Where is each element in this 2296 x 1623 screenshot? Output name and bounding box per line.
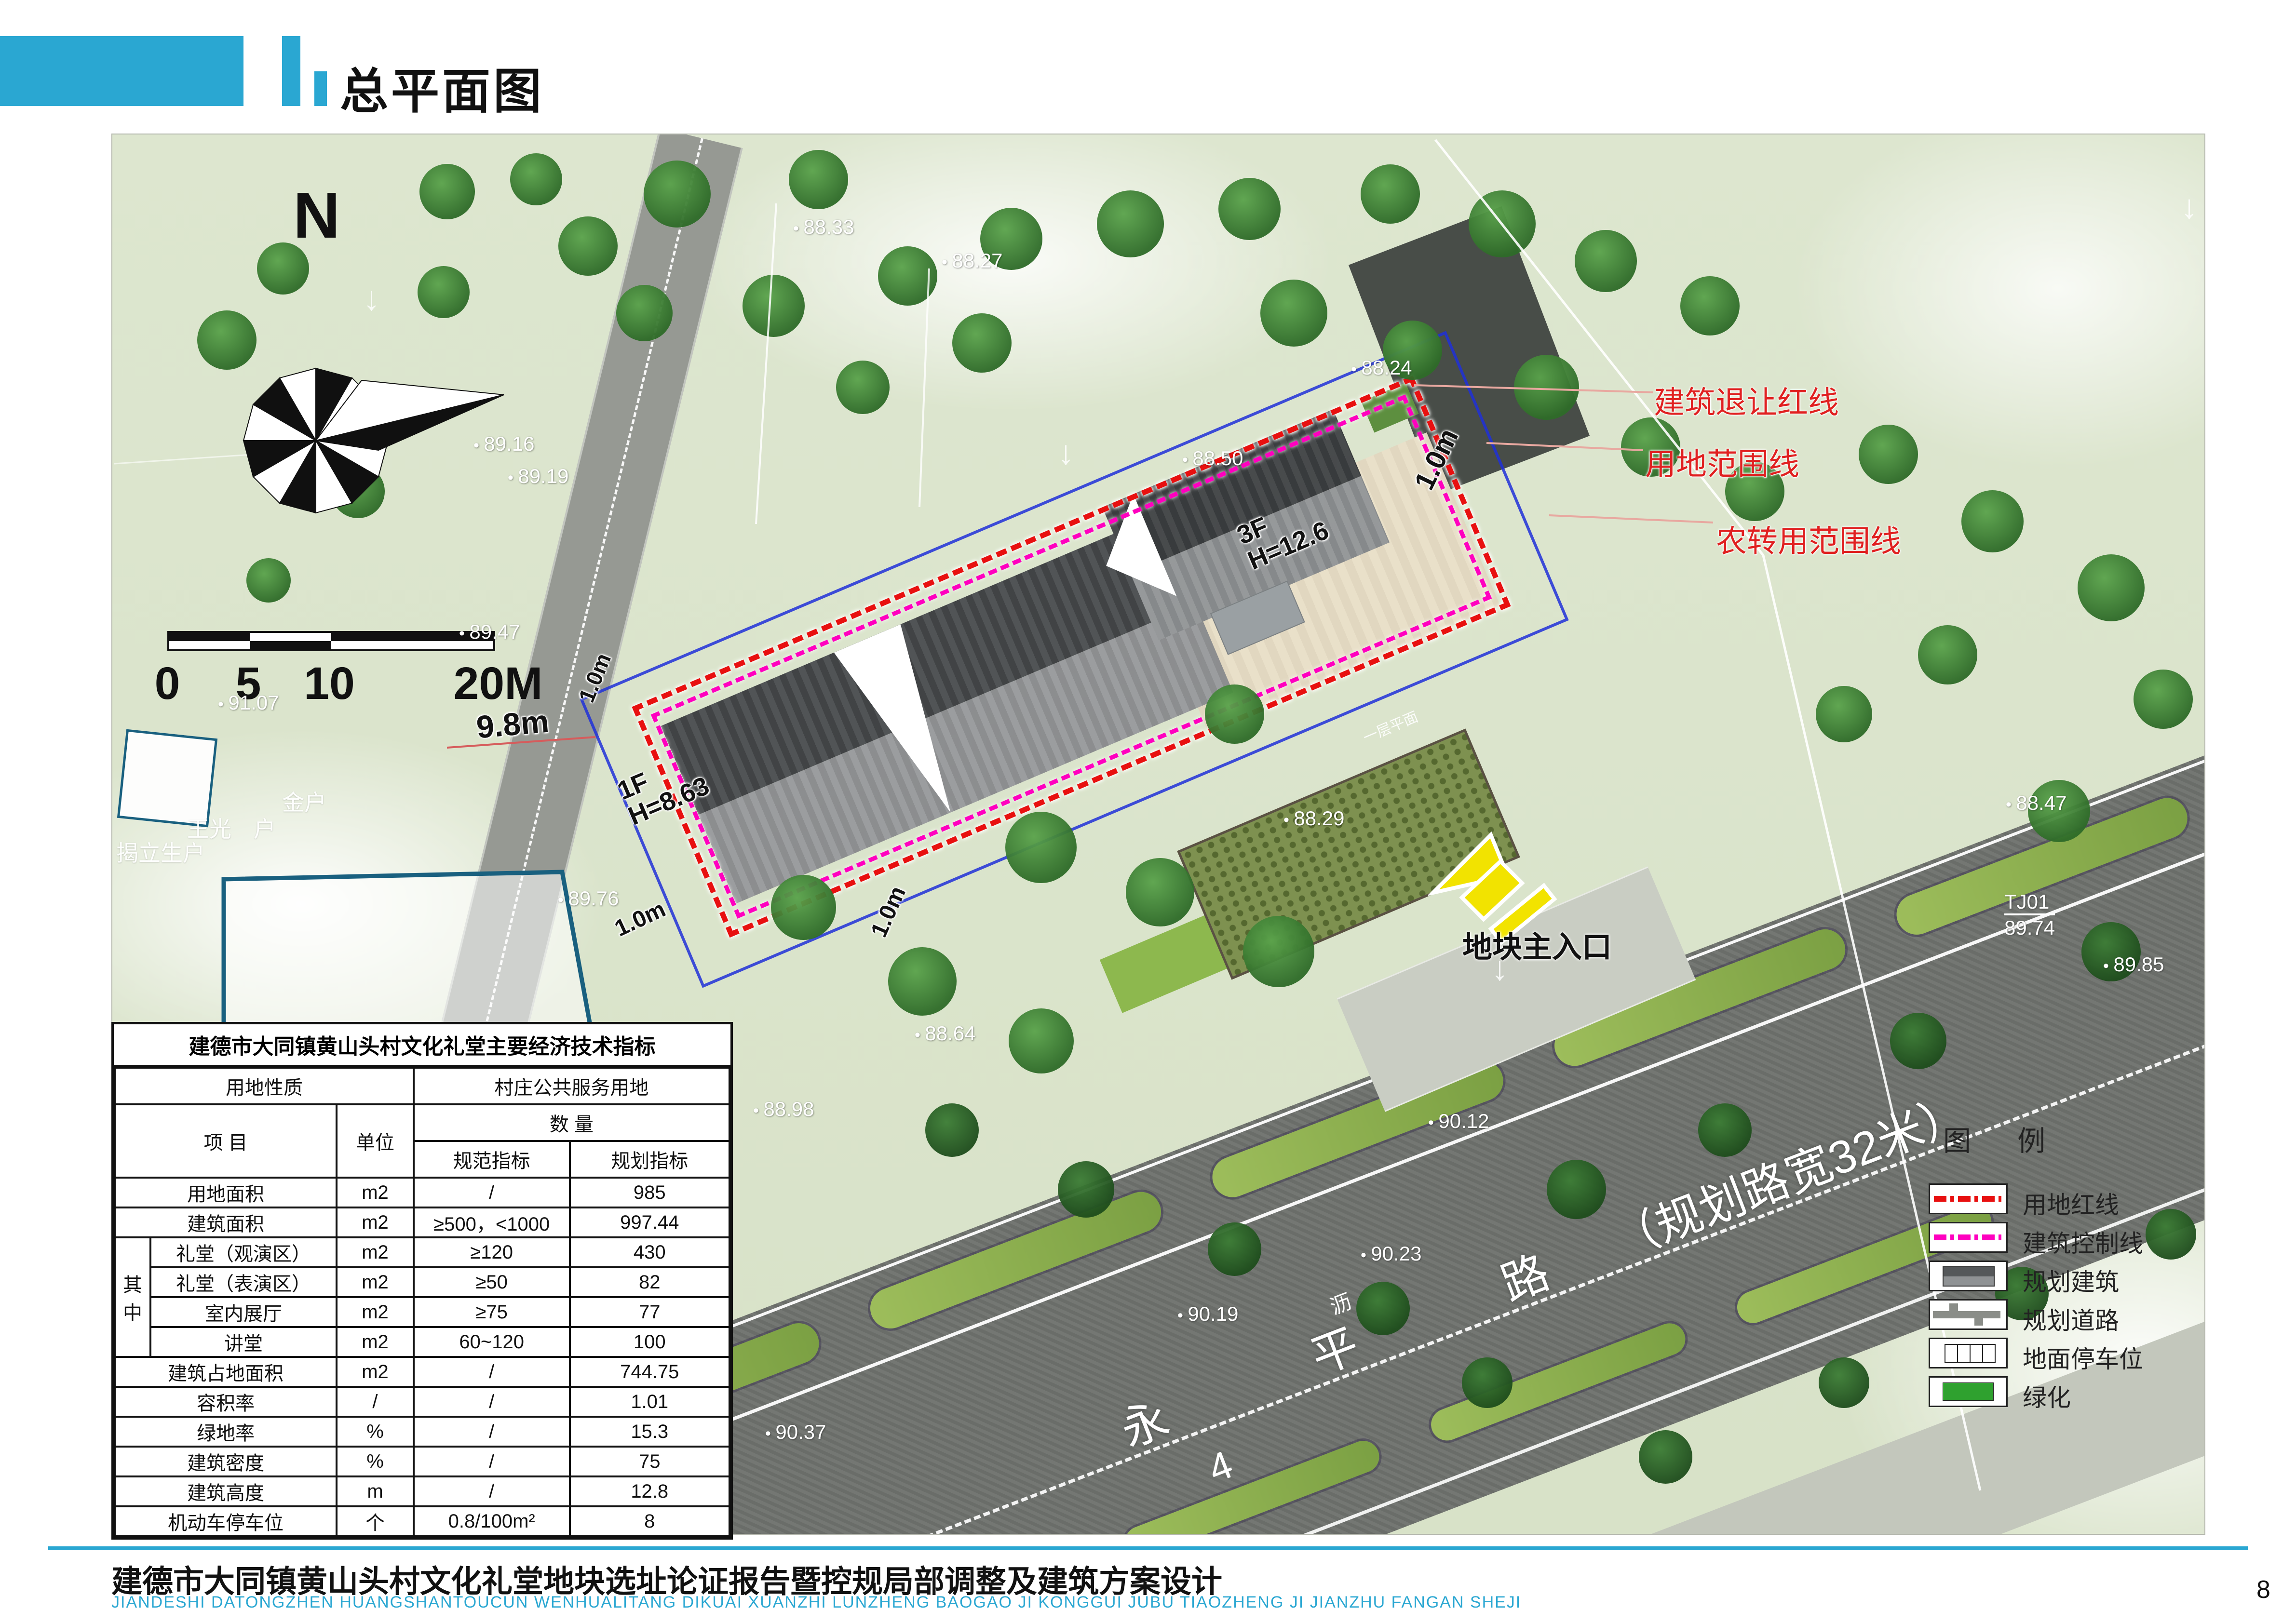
- page-number: 8: [2256, 1575, 2270, 1604]
- spot-elevation: 89.76: [558, 887, 619, 910]
- legend-item-magenta-line: 建筑控制线: [1924, 1222, 2213, 1251]
- legend-item-label: 绿化: [2023, 1379, 2071, 1413]
- tree-icon: [1243, 916, 1314, 987]
- row-plan: 100: [570, 1327, 730, 1357]
- dimension-label: 9.8m: [475, 703, 550, 746]
- road-symbol: [1933, 1311, 2000, 1318]
- spot-elevation: 88.64: [915, 1022, 975, 1045]
- tree-icon: [789, 150, 848, 209]
- scale-bar: [167, 631, 495, 651]
- legend-item-road: 规划道路: [1924, 1299, 2213, 1328]
- entrance-label: 地块主入口: [1462, 923, 1612, 966]
- row-unit: m2: [337, 1327, 414, 1357]
- row-plan: 15.3: [570, 1417, 730, 1447]
- tree-icon: [1009, 1008, 1074, 1073]
- tree-icon: [771, 875, 836, 940]
- row-unit: %: [337, 1417, 414, 1447]
- row-spec: ≥500，<1000: [414, 1207, 570, 1237]
- row-spec: 60~120: [414, 1327, 570, 1357]
- tree-icon: [1462, 1357, 1513, 1408]
- legend-symbol-box: [1929, 1183, 2008, 1214]
- row-unit: m2: [337, 1237, 414, 1267]
- leader-line: [1549, 515, 1713, 523]
- row-spec: /: [414, 1447, 570, 1476]
- spot-elevation: 91.07: [218, 691, 279, 714]
- row-plan: 12.8: [570, 1476, 730, 1506]
- row-plan: 77: [570, 1297, 730, 1327]
- tree-icon: [616, 285, 673, 341]
- header-accent-bar-small: [314, 71, 327, 106]
- tree-icon: [888, 947, 957, 1016]
- row-item: 绿地率: [115, 1417, 337, 1447]
- magenta-line-symbol: [1934, 1234, 2001, 1240]
- tree-icon: [1547, 1160, 1606, 1219]
- tree-icon: [1208, 1222, 1261, 1276]
- spot-elevation-tj01: TJ0189.74: [2004, 890, 2055, 939]
- tree-icon: [1058, 1161, 1114, 1218]
- floor-plan-label: 一层平面: [1359, 705, 1421, 747]
- row-item: 室内展厅: [150, 1297, 337, 1327]
- col-spec: 规范指标: [414, 1141, 570, 1178]
- parking-symbol: [1945, 1344, 1995, 1363]
- tj-code: TJ01: [2004, 890, 2049, 913]
- scale-label-10: 10: [304, 657, 355, 710]
- tj-elevation: 89.74: [2004, 913, 2055, 939]
- row-spec: /: [414, 1417, 570, 1447]
- tree-icon: [644, 161, 711, 228]
- tree-icon: [1356, 1282, 1410, 1335]
- row-unit: m2: [337, 1297, 414, 1327]
- scale-label-20m: 20M: [454, 657, 543, 710]
- legend-symbol-box: [1929, 1222, 2008, 1253]
- table-row: 绿地率%/15.3: [115, 1417, 729, 1447]
- spot-elevation: 88.24: [1351, 356, 1412, 379]
- legend-item-building: 规划建筑: [1924, 1261, 2213, 1289]
- table-row: 用地面积m2/985: [115, 1178, 729, 1207]
- table-row: 其中礼堂（观演区）m2≥120430: [115, 1237, 729, 1267]
- north-label: N: [293, 178, 340, 253]
- land-use-value: 村庄公共服务用地: [414, 1068, 729, 1104]
- row-item: 建筑高度: [115, 1476, 337, 1506]
- row-unit: m2: [337, 1267, 414, 1297]
- tree-icon: [1469, 190, 1536, 257]
- tree-icon: [1890, 1013, 1946, 1069]
- table-row: 建筑面积m2≥500，<1000997.44: [115, 1207, 729, 1237]
- tree-icon: [878, 246, 937, 306]
- row-item: 建筑密度: [115, 1447, 337, 1476]
- tree-icon: [1918, 625, 1977, 684]
- green-symbol: [1943, 1382, 1994, 1401]
- tree-icon: [743, 275, 805, 337]
- col-quantity: 数 量: [414, 1104, 729, 1141]
- legend-item-label: 规划道路: [2023, 1301, 2119, 1336]
- row-spec: 0.8/100m²: [414, 1506, 570, 1536]
- row-unit: m2: [337, 1357, 414, 1387]
- spot-elevation: 90.19: [1177, 1302, 1238, 1326]
- tree-icon: [1260, 280, 1327, 347]
- row-unit: 个: [337, 1506, 414, 1536]
- flow-arrow-icon: ↓: [1491, 949, 1508, 988]
- road-symbol-stub: [1949, 1303, 1958, 1312]
- flow-arrow-icon: ↓: [363, 279, 380, 318]
- spot-elevation: 88.29: [1283, 807, 1344, 830]
- table-row: 建筑占地面积m2/744.75: [115, 1357, 729, 1387]
- spot-elevation: 89.85: [2103, 953, 2164, 976]
- row-unit: m: [337, 1476, 414, 1506]
- row-spec: /: [414, 1357, 570, 1387]
- tree-icon: [1575, 230, 1637, 292]
- spot-elevation: 88.47: [2006, 791, 2066, 815]
- tree-icon: [1005, 812, 1077, 883]
- legend-item-label: 规划建筑: [2023, 1263, 2119, 1298]
- tree-icon: [1097, 190, 1164, 257]
- tree-icon: [1361, 164, 1420, 224]
- header-accent-block: [0, 36, 243, 106]
- indicators-table: 建德市大同镇黄山头村文化礼堂主要经济技术指标 用地性质村庄公共服务用地项 目单位…: [111, 1022, 733, 1540]
- row-item: 建筑面积: [115, 1207, 337, 1237]
- table-row: 礼堂（表演区）m2≥5082: [115, 1267, 729, 1297]
- page-title: 总平面图: [340, 52, 544, 122]
- parcel-owner-label: 金户: [282, 785, 326, 817]
- tree-icon: [1859, 425, 1918, 484]
- building-symbol: [1943, 1266, 1995, 1287]
- spot-elevation: 90.37: [765, 1421, 826, 1444]
- spot-elevation: 88.27: [942, 249, 1002, 272]
- table-row: 容积率//1.01: [115, 1387, 729, 1417]
- header-accent-bar: [282, 36, 300, 106]
- land-use-label: 用地性质: [115, 1068, 414, 1104]
- road-symbol-stub: [1974, 1318, 1983, 1326]
- row-spec: /: [414, 1476, 570, 1506]
- table-row: 建筑高度m/12.8: [115, 1476, 729, 1506]
- spot-elevation: 89.47: [459, 620, 520, 644]
- legend-symbol-box: [1929, 1261, 2008, 1291]
- row-unit: m2: [337, 1207, 414, 1237]
- spot-elevation: 89.16: [473, 432, 534, 456]
- col-item: 项 目: [115, 1104, 337, 1178]
- legend-symbol-box: [1929, 1376, 2008, 1407]
- tree-icon: [1816, 686, 1872, 742]
- legend-item-parking: 地面停车位: [1924, 1338, 2213, 1367]
- row-unit: %: [337, 1447, 414, 1476]
- row-unit: /: [337, 1387, 414, 1417]
- tree-icon: [1205, 684, 1264, 744]
- indicators-table-grid: 用地性质村庄公共服务用地项 目单位数 量规范指标规划指标用地面积m2/985建筑…: [114, 1067, 730, 1537]
- row-item: 礼堂（表演区）: [150, 1267, 337, 1297]
- spot-elevation: 88.33: [793, 215, 854, 239]
- spot-elevation: 88.50: [1182, 447, 1243, 470]
- row-plan: 744.75: [570, 1357, 730, 1387]
- legend-title: 图 例: [1943, 1118, 2213, 1159]
- tree-icon: [246, 558, 291, 603]
- row-plan: 8: [570, 1506, 730, 1536]
- parcel-owner-label: 王光 户: [187, 812, 276, 844]
- row-item: 礼堂（观演区）: [150, 1237, 337, 1267]
- page: 总平面图 永 平 路（规划路宽32米） 沥 4: [0, 0, 2296, 1623]
- row-item: 用地面积: [115, 1178, 337, 1207]
- red-line-symbol: [1934, 1196, 2001, 1202]
- tree-icon: [1126, 858, 1194, 926]
- table-row: 建筑密度%/75: [115, 1447, 729, 1476]
- table-title: 建德市大同镇黄山头村文化礼堂主要经济技术指标: [114, 1024, 730, 1067]
- tree-icon: [1819, 1357, 1869, 1408]
- footer-pinyin: JIANDESHI DATONGZHEN HUANGSHANTOUCUN WEN…: [111, 1593, 1521, 1612]
- col-unit: 单位: [337, 1104, 414, 1178]
- col-plan: 规划指标: [570, 1141, 730, 1178]
- flow-arrow-icon: ↓: [1057, 433, 1074, 472]
- tree-icon: [510, 153, 562, 205]
- tree-icon: [1639, 1430, 1692, 1484]
- legend-symbol-box: [1929, 1338, 2008, 1368]
- footer-rule: [48, 1546, 2248, 1550]
- dimension-label: 1.0m: [611, 896, 670, 942]
- red-annotation-label: 建筑退让红线: [1654, 378, 1839, 422]
- row-item: 建筑占地面积: [115, 1357, 337, 1387]
- tree-icon: [419, 164, 475, 219]
- scale-label-0: 0: [155, 657, 180, 710]
- row-plan: 1.01: [570, 1387, 730, 1417]
- legend-symbol-box: [1929, 1299, 2008, 1330]
- tree-icon: [952, 313, 1012, 373]
- tree-icon: [1514, 355, 1579, 420]
- tree-icon: [1680, 276, 1740, 335]
- tree-icon: [2134, 670, 2193, 729]
- row-item: 机动车停车位: [115, 1506, 337, 1536]
- table-row: 机动车停车位个0.8/100m²8: [115, 1506, 729, 1536]
- legend-item-green: 绿化: [1924, 1376, 2213, 1405]
- tree-icon: [1698, 1103, 1752, 1157]
- legend-item-label: 建筑控制线: [2023, 1224, 2143, 1259]
- tree-icon: [1218, 178, 1281, 240]
- tree-icon: [558, 216, 618, 276]
- spot-elevation: 89.19: [508, 465, 568, 488]
- row-spec: /: [414, 1178, 570, 1207]
- red-annotation-label: 用地范围线: [1645, 440, 1799, 484]
- spot-elevation: 90.12: [1428, 1110, 1489, 1133]
- flow-arrow-icon: ↓: [2181, 188, 2198, 226]
- tree-icon: [2078, 554, 2145, 621]
- spot-elevation: 88.98: [753, 1098, 814, 1121]
- table-row: 室内展厅m2≥7577: [115, 1297, 729, 1327]
- row-item: 讲堂: [150, 1327, 337, 1357]
- row-item: 容积率: [115, 1387, 337, 1417]
- legend: 图 例 用地红线建筑控制线规划建筑规划道路地面停车位绿化: [1924, 1118, 2213, 1159]
- row-plan: 430: [570, 1237, 730, 1267]
- legend-item-red-line: 用地红线: [1924, 1183, 2213, 1212]
- row-spec: ≥50: [414, 1267, 570, 1297]
- table-row: 讲堂m260~120100: [115, 1327, 729, 1357]
- row-unit: m2: [337, 1178, 414, 1207]
- row-plan: 75: [570, 1447, 730, 1476]
- row-spec: /: [414, 1387, 570, 1417]
- spot-elevation: 90.23: [1361, 1242, 1421, 1265]
- tree-icon: [836, 361, 890, 414]
- row-spec: ≥120: [414, 1237, 570, 1267]
- legend-item-label: 地面停车位: [2023, 1340, 2143, 1375]
- group-label: 其中: [115, 1237, 150, 1357]
- row-spec: ≥75: [414, 1297, 570, 1327]
- tree-icon: [418, 266, 470, 318]
- road-number-label: 4: [1202, 1442, 1239, 1492]
- tree-icon: [1961, 490, 2024, 552]
- row-plan: 985: [570, 1178, 730, 1207]
- row-plan: 997.44: [570, 1207, 730, 1237]
- tree-icon: [925, 1103, 979, 1157]
- red-annotation-label: 农转用范围线: [1716, 517, 1901, 561]
- row-plan: 82: [570, 1267, 730, 1297]
- legend-item-label: 用地红线: [2023, 1186, 2119, 1221]
